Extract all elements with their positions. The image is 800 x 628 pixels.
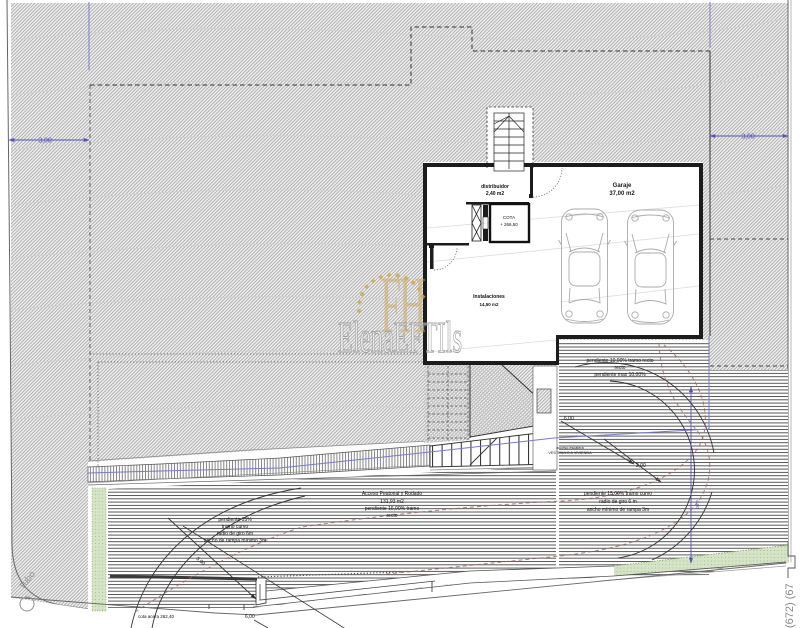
svg-text:recto: recto [386, 513, 397, 519]
svg-text:3,00: 3,00 [38, 138, 52, 145]
svg-text:pendiente 15%: pendiente 15% [218, 517, 252, 523]
svg-text:tramo curvo: tramo curvo [222, 524, 249, 530]
svg-text:recto: recto [614, 365, 625, 371]
svg-text:Acceso Peatonal y Rodado: Acceso Peatonal y Rodado [362, 491, 423, 497]
svg-text:pendiente 16,00% tramo: pendiente 16,00% tramo [365, 506, 420, 512]
svg-text:131,93 m2: 131,93 m2 [380, 499, 404, 505]
svg-text:6,00: 6,00 [564, 416, 574, 422]
svg-text:3,00: 3,00 [741, 134, 755, 141]
svg-text:cota acera 262,40: cota acera 262,40 [138, 614, 175, 619]
svg-text:14,50 m2: 14,50 m2 [479, 302, 499, 307]
svg-text:(672) (67: (672) (67 [784, 583, 796, 628]
svg-text:37,00 m2: 37,00 m2 [609, 191, 635, 197]
svg-text:2,40 m2: 2,40 m2 [486, 191, 505, 197]
svg-text:Instalaciones: Instalaciones [473, 294, 505, 300]
svg-text:distribuidor: distribuidor [481, 184, 509, 190]
svg-text:Garaje: Garaje [613, 183, 632, 189]
svg-text:4,00: 4,00 [695, 500, 700, 509]
svg-text:ancho mínimo de rampa 3m: ancho mínimo de rampa 3m [587, 507, 649, 513]
svg-text:radio de giro 6m: radio de giro 6m [217, 531, 253, 537]
svg-text:6,00: 6,00 [245, 614, 255, 620]
svg-text:2,00: 2,00 [636, 463, 646, 469]
svg-text:pendiente 10,00% tramo recto: pendiente 10,00% tramo recto [587, 358, 654, 364]
svg-text:pendiente max 10,00%: pendiente max 10,00% [594, 372, 646, 378]
svg-text:VESTIBULO A VIVIENDA: VESTIBULO A VIVIENDA [548, 451, 592, 455]
svg-text:ElenaEFTIls: ElenaEFTIls [338, 313, 462, 362]
svg-text:radio de giro 6 m: radio de giro 6 m [599, 499, 637, 505]
svg-text:+ 266,50: + 266,50 [500, 222, 518, 227]
svg-text:COTA: COTA [503, 215, 515, 220]
svg-text:acceso escalera: acceso escalera [556, 446, 584, 450]
svg-text:pendiente 15,00% tramo curvo: pendiente 15,00% tramo curvo [584, 491, 652, 497]
svg-text:ancho de rampa mínimo 3m: ancho de rampa mínimo 3m [204, 538, 266, 544]
